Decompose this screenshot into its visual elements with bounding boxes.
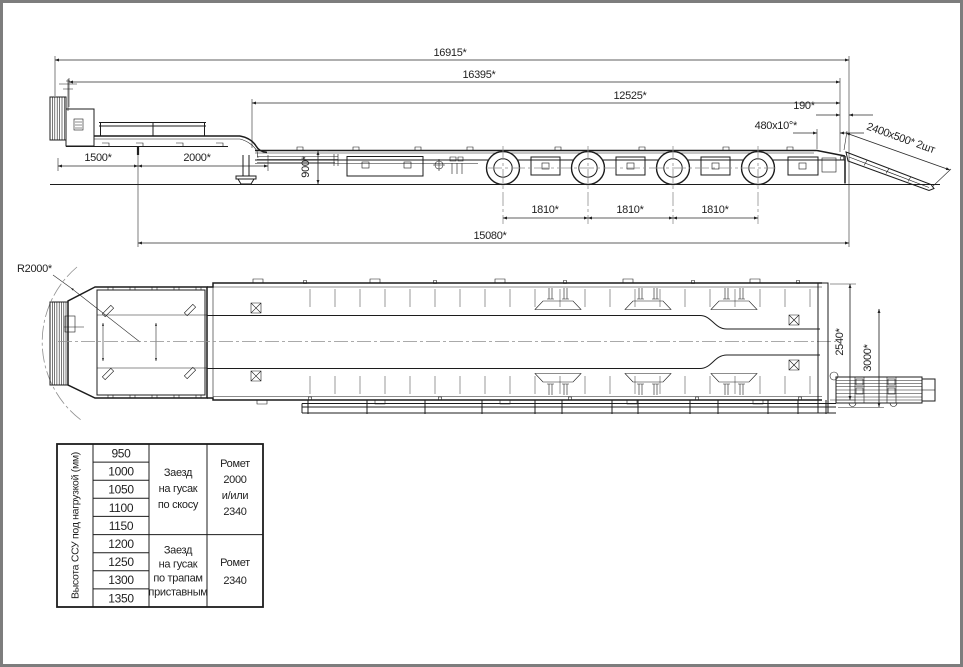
ramp-line: Ромет <box>220 458 250 470</box>
ramp-line: Ромет <box>220 557 250 569</box>
dim-axle-spacing-1: 1810* <box>531 204 559 216</box>
spec-table: Высота ССУ под нагрузкой (мм) 950 1000 1… <box>57 444 263 607</box>
method-line: Заезд <box>164 467 193 479</box>
method-line: по скосу <box>158 499 199 511</box>
top-view: R2000* <box>17 263 935 420</box>
dim-rear-bevel: 480x10°* <box>755 120 798 132</box>
dim-ramp-size: 2400x500* 2шт <box>865 121 937 156</box>
side-guard-rail <box>302 400 836 414</box>
dim-axle-spacing-3: 1810* <box>701 204 729 216</box>
dim-front-overhang: 1500* <box>84 152 112 164</box>
ramp-line: 2340 <box>223 506 246 518</box>
toolbox <box>347 157 423 177</box>
table-row-header: Высота ССУ под нагрузкой (мм) <box>70 452 82 599</box>
front-bumper-plan <box>50 302 68 385</box>
dim-overall-length: 16915* <box>433 47 467 59</box>
height-value: 1350 <box>108 591 134 605</box>
ramp-line: 2340 <box>223 575 246 587</box>
height-value: 1200 <box>108 537 134 551</box>
ramp-line: 2000 <box>223 474 246 486</box>
dim-kingpin-to-rear: 15080* <box>473 230 507 242</box>
top-dimensions: 2540* 3000* <box>830 284 884 408</box>
trailer-technical-drawing: 16915* 16395* 12525* 190* 480x10°* 2400x… <box>3 3 960 664</box>
height-value: 1300 <box>108 573 134 587</box>
loading-method-group-2: Заезд на гусак по трапам приставным Роме… <box>148 545 250 599</box>
method-line: по трапам <box>153 573 202 585</box>
drawing-sheet: 16915* 16395* 12525* 190* 480x10°* 2400x… <box>0 0 963 667</box>
dim-deck-width: 2540* <box>834 327 846 355</box>
height-value: 1150 <box>109 519 134 533</box>
dim-overall-width: 3000* <box>862 343 874 371</box>
dim-gooseneck-length: 2000* <box>183 152 211 164</box>
method-line: приставным <box>148 587 207 599</box>
dim-axle-spacing-2: 1810* <box>616 204 644 216</box>
dim-deck-height: 900* <box>300 155 312 177</box>
dim-deck-length: 12525* <box>613 90 647 102</box>
ramp-line: и/или <box>222 490 249 502</box>
dim-length-over-body: 16395* <box>462 69 496 81</box>
gooseneck-side <box>66 109 267 184</box>
height-value: 1100 <box>109 501 134 515</box>
method-line: на гусак <box>159 483 198 495</box>
height-value: 1250 <box>108 555 134 569</box>
lashing-boxes <box>251 303 799 381</box>
main-deck-plan <box>58 279 836 414</box>
height-value: 1050 <box>108 483 134 497</box>
dim-rear-offset: 190* <box>793 100 815 112</box>
method-line: Заезд <box>164 545 193 557</box>
gooseneck-plan <box>68 287 207 398</box>
method-line: на гусак <box>159 559 198 571</box>
height-values: 950 1000 1050 1100 1150 1200 1250 1300 1… <box>108 447 134 606</box>
front-bumper <box>50 97 66 140</box>
height-value: 1000 <box>108 465 134 479</box>
dim-turning-radius: R2000* <box>17 263 53 275</box>
side-view: 16915* 16395* 12525* 190* 480x10°* 2400x… <box>50 47 951 247</box>
loading-method-group-1: Заезд на гусак по скосу Ромет 2000 и/или… <box>158 458 250 518</box>
height-value: 950 <box>111 447 131 461</box>
